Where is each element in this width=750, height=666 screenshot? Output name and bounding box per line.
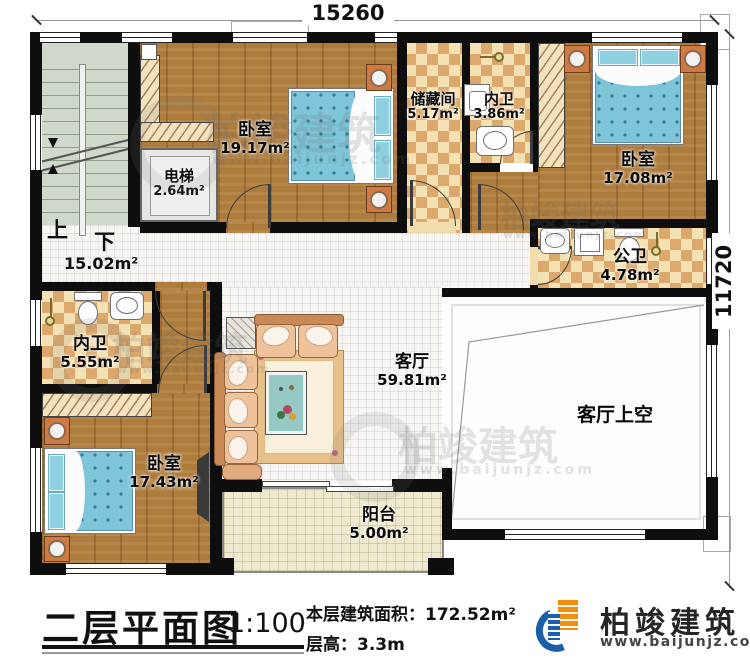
- sink-basin: [483, 131, 507, 150]
- lamp-icon: [370, 69, 388, 87]
- bath-top-area: 3.86m²: [473, 108, 524, 123]
- bath-public-area: 4.78m²: [600, 267, 659, 284]
- table-dot: [279, 387, 283, 391]
- stairs-up-label: 上: [47, 214, 68, 244]
- door-opening-bath-top: [500, 163, 533, 172]
- lamp-icon: [568, 50, 586, 68]
- wall-storage-right: [462, 32, 470, 233]
- nightstand: [680, 45, 706, 73]
- door-opening-bath-public: [530, 247, 538, 285]
- window-bottom-void: [505, 529, 645, 540]
- shower-hose: [50, 298, 52, 318]
- door-opening-suite: [155, 282, 207, 291]
- room-label-bath-top: 内卫 3.86m²: [462, 86, 536, 128]
- pillow: [49, 493, 64, 529]
- watermark-site: www.baijunjz.com: [404, 462, 595, 478]
- sink-basin: [116, 297, 138, 314]
- room-label-bedroom-right: 卧室 17.08m²: [578, 146, 698, 192]
- lamp-icon: [684, 50, 702, 68]
- window-left-stairs: [30, 115, 42, 170]
- lamp-icon: [48, 540, 66, 558]
- nightstand: [564, 45, 590, 73]
- stair-arrow-down-icon: [48, 138, 58, 148]
- bedroom-right-name: 卧室: [621, 151, 655, 170]
- toilet-tank: [74, 292, 102, 301]
- window-top-2: [122, 32, 172, 43]
- window-top-1: [40, 32, 80, 43]
- logo-building-blue: [548, 612, 560, 640]
- window-top-3: [233, 32, 307, 43]
- plan-scale: 1:100: [228, 608, 306, 639]
- table-flower: [277, 411, 285, 419]
- dimension-top-value: 15260: [302, 1, 394, 25]
- room-label-storage: 储藏间 5.17m²: [396, 86, 470, 128]
- title-underline-thick: [42, 645, 304, 649]
- bedroom-top-name: 卧室: [238, 121, 272, 140]
- floor-area-value: 172.52m²: [425, 605, 516, 625]
- window-right-bedroom: [706, 85, 718, 180]
- pillow: [49, 455, 64, 491]
- window-top-5: [592, 32, 682, 43]
- room-label-bedroom-top: 卧室 19.17m²: [195, 116, 315, 162]
- floor-height-row: 层高：3.3m: [306, 630, 405, 655]
- lamp-icon: [370, 191, 388, 209]
- door-leaf-storage: [410, 180, 413, 226]
- floor-height-value: 3.3m: [357, 635, 405, 655]
- balcony-slider-panel-1: [262, 481, 330, 487]
- hall-area-label: 15.02m²: [64, 254, 138, 273]
- wall-bedroom-top-south-a: [140, 222, 226, 233]
- shower-head-icon: [494, 52, 504, 62]
- stair-arrow-up-icon: [48, 164, 58, 174]
- staircase-landing: [42, 43, 128, 63]
- watermark-site: www.baijunjz.com: [116, 362, 271, 376]
- wall-bedroom-storage: [397, 32, 407, 233]
- room-label-balcony: 阳台 5.00m²: [327, 501, 431, 547]
- nightstand: [366, 186, 392, 213]
- dimension-right-value: 11720: [712, 233, 738, 329]
- floor-area-row: 本层建筑面积：172.52m²: [306, 600, 516, 625]
- room-label-living: 客厅 59.81m²: [358, 350, 466, 392]
- balcony-post-bottom-left: [222, 558, 234, 575]
- bedroom-right-area: 17.08m²: [603, 170, 673, 187]
- bath-top-name: 内卫: [484, 91, 514, 108]
- window-left-bedroom: [30, 448, 42, 532]
- plan-title: 二层平面图: [42, 598, 242, 652]
- floor-height-label: 层高：: [306, 635, 357, 655]
- living-area: 59.81m²: [377, 372, 447, 389]
- nightstand: [44, 536, 70, 562]
- window-top-4: [375, 32, 397, 43]
- room-label-bath-public: 公卫 4.78m²: [570, 246, 690, 286]
- living-void-name: 客厅上空: [577, 405, 653, 426]
- bath-public-name: 公卫: [613, 248, 647, 267]
- closet-door-marker: [141, 44, 157, 60]
- living-name: 客厅: [395, 353, 429, 372]
- table-dot: [289, 385, 294, 390]
- wardrobe-bedroom-right: [538, 43, 565, 168]
- nightstand: [44, 417, 70, 445]
- window-bottom-bedroom: [66, 563, 166, 575]
- door-leaf-bedroom-right-entry: [478, 184, 481, 230]
- logo-building-orange: [558, 598, 578, 630]
- balcony-post-bottom-right: [428, 558, 454, 575]
- storage-name: 储藏间: [410, 91, 455, 108]
- door-leaf-bedroom-top: [268, 184, 271, 228]
- stairs-down-label: 下: [94, 226, 115, 256]
- room-label-living-void: 客厅上空: [540, 402, 690, 430]
- storage-area: 5.17m²: [407, 108, 458, 123]
- wall-bedroom-top-south-b: [270, 222, 397, 233]
- nightstand: [366, 64, 392, 91]
- shower-head-icon: [45, 316, 55, 326]
- title-underline-thin: [42, 652, 304, 654]
- bedroom-top-area: 19.17m²: [220, 140, 290, 157]
- wall-void-north: [442, 288, 706, 297]
- watermark-site: www.baijunjz.com: [503, 228, 647, 241]
- window-left-bath: [30, 300, 42, 346]
- balcony-area: 5.00m²: [349, 525, 408, 542]
- table-flower: [289, 413, 296, 420]
- balcony-name: 阳台: [362, 506, 396, 525]
- bedroom-bottom-area: 17.43m²: [129, 474, 199, 491]
- room-label-bath-left: 内卫 5.55m²: [48, 332, 132, 374]
- brand-logo-icon: [536, 596, 592, 658]
- bedroom-bottom-name: 卧室: [147, 455, 181, 474]
- pillow: [599, 50, 637, 65]
- bath-left-name: 内卫: [73, 335, 107, 354]
- lamp-icon: [48, 422, 66, 440]
- pillow: [641, 50, 679, 65]
- floor-plan: 电梯 2.64m²: [0, 0, 750, 666]
- brand-website: www.baijunjz.com: [600, 634, 750, 650]
- bath-left-area: 5.55m²: [60, 354, 119, 371]
- room-label-bedroom-bottom: 卧室 17.43m²: [108, 450, 220, 496]
- bed-sheet: [65, 451, 85, 531]
- sofa-armrest: [222, 464, 262, 480]
- floor-area-label: 本层建筑面积：: [306, 605, 425, 625]
- coffee-table: [266, 372, 306, 434]
- bed-bedroom-right: [592, 45, 684, 145]
- door-leaf-bath-top: [530, 131, 533, 164]
- window-right-void: [706, 345, 718, 477]
